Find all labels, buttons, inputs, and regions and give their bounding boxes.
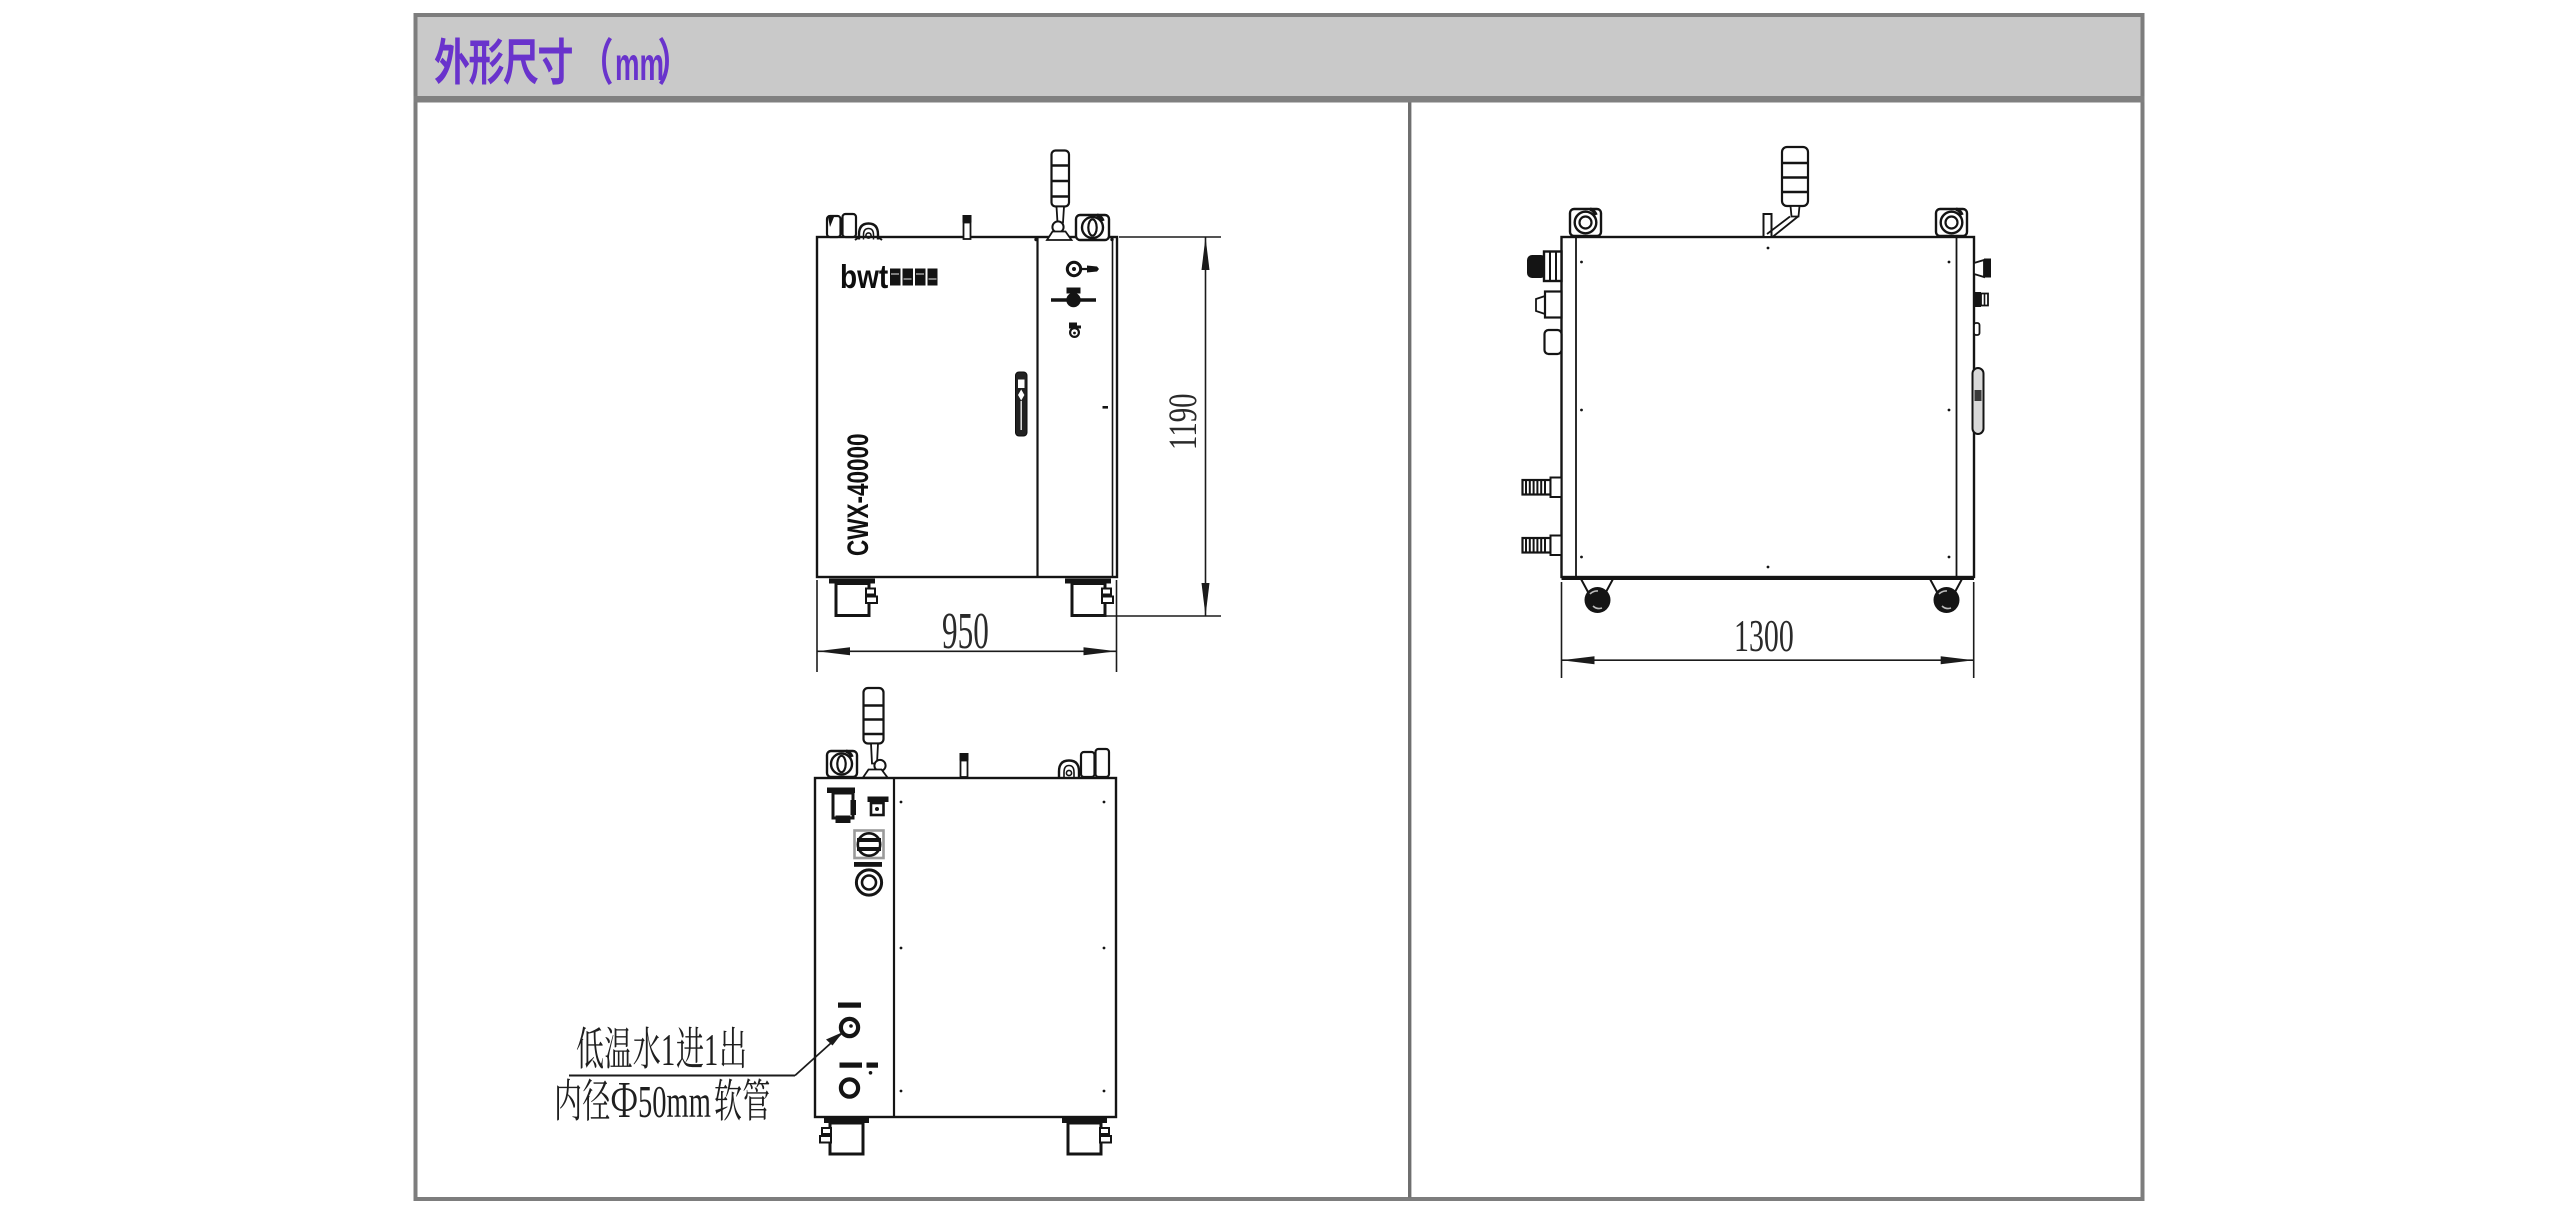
svg-text:bwt: bwt <box>840 259 888 296</box>
svg-text:1: 1 <box>661 1025 675 1075</box>
svg-text:1: 1 <box>704 1025 718 1075</box>
svg-text:50mm: 50mm <box>638 1077 711 1127</box>
svg-text:1300: 1300 <box>1734 611 1794 662</box>
svg-text:CWX-40000: CWX-40000 <box>841 434 875 556</box>
svg-text:mm: mm <box>615 40 664 91</box>
svg-text:950: 950 <box>942 603 989 660</box>
svg-text:1190: 1190 <box>1160 393 1205 450</box>
